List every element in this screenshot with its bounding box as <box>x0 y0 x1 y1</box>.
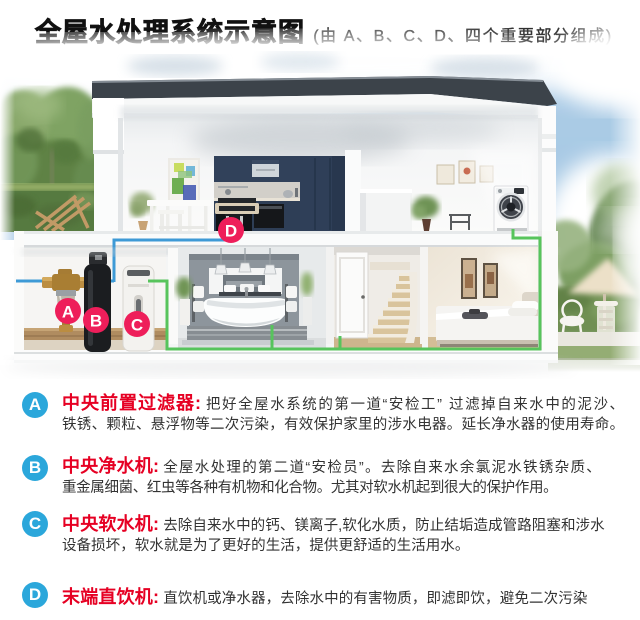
svg-text:C: C <box>131 316 143 335</box>
svg-text:D: D <box>225 222 237 241</box>
svg-text:A: A <box>62 303 74 322</box>
svg-text:B: B <box>90 312 102 331</box>
